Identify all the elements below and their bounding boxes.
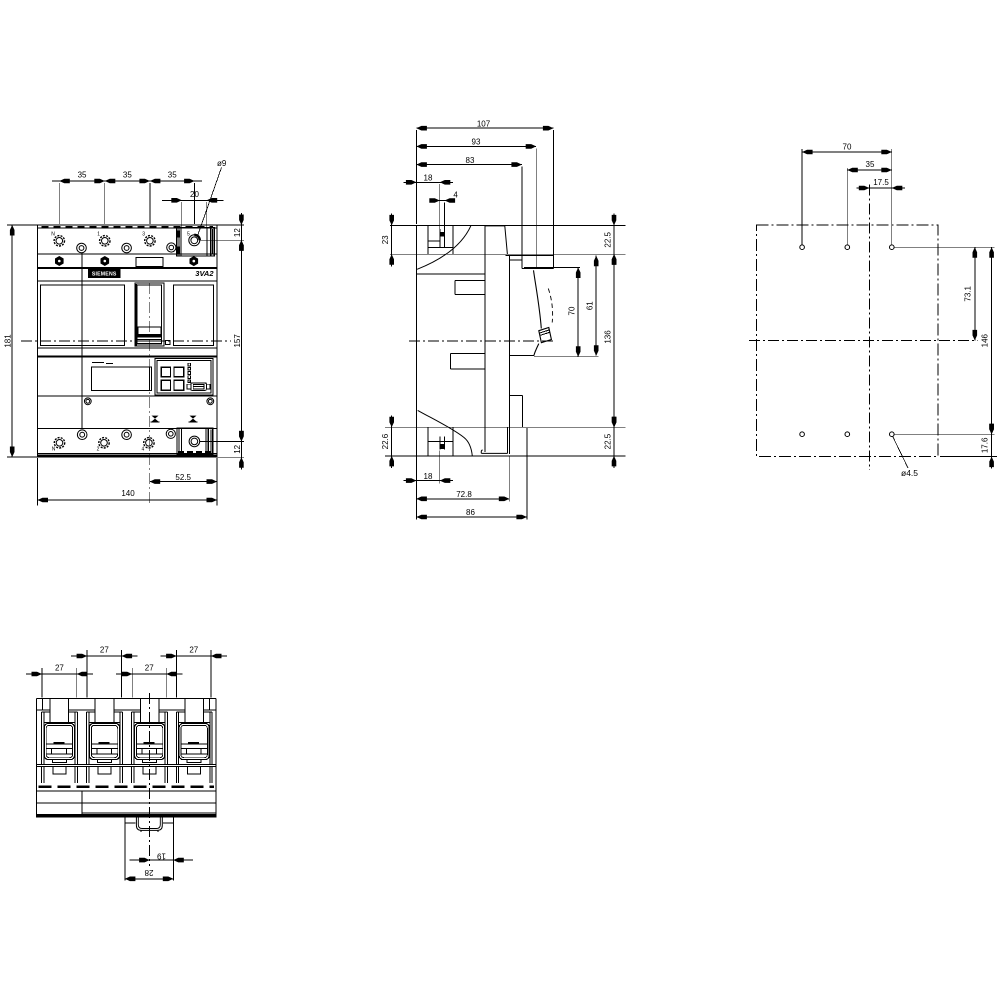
svg-text:61: 61 [585,301,594,310]
svg-text:1: 1 [97,232,100,238]
svg-text:19: 19 [157,852,166,861]
svg-text:22.5: 22.5 [603,232,612,248]
svg-text:27: 27 [100,645,109,654]
svg-text:140: 140 [121,489,135,498]
svg-text:4: 4 [142,447,145,453]
svg-text:18: 18 [424,472,433,481]
svg-text:83: 83 [466,156,475,165]
svg-text:3: 3 [142,232,145,238]
svg-text:3VA2: 3VA2 [195,269,214,278]
svg-text:4: 4 [453,190,458,199]
svg-text:73.1: 73.1 [964,285,973,301]
svg-text:72.8: 72.8 [456,490,472,499]
svg-text:20: 20 [190,190,199,199]
svg-text:52.5: 52.5 [175,473,191,482]
svg-text:157: 157 [233,334,242,348]
svg-text:93: 93 [472,138,481,147]
svg-text:18: 18 [424,174,433,183]
svg-text:22.5: 22.5 [603,433,612,449]
svg-text:N: N [51,232,55,238]
svg-text:146: 146 [981,333,990,347]
svg-text:35: 35 [168,171,177,180]
svg-text:136: 136 [603,330,612,344]
svg-text:86: 86 [466,508,475,517]
svg-text:28: 28 [144,868,153,877]
svg-text:2: 2 [97,447,100,453]
svg-text:27: 27 [145,663,154,672]
svg-text:17.6: 17.6 [981,437,990,453]
svg-text:27: 27 [55,663,64,672]
svg-text:70: 70 [567,306,576,315]
svg-text:17.5: 17.5 [873,178,889,187]
svg-text:35: 35 [866,160,875,169]
svg-text:SIEMENS: SIEMENS [92,272,117,278]
svg-text:N: N [52,447,56,453]
svg-text:181: 181 [4,334,13,348]
svg-text:22.6: 22.6 [381,433,390,449]
svg-text:35: 35 [123,171,132,180]
svg-text:12: 12 [233,444,242,453]
svg-text:23: 23 [381,235,390,244]
svg-text:ø4.5: ø4.5 [901,468,918,478]
svg-text:ø9: ø9 [217,159,227,168]
svg-text:35: 35 [78,171,87,180]
svg-text:27: 27 [189,645,198,654]
svg-text:5: 5 [187,232,190,238]
svg-text:107: 107 [477,119,491,128]
svg-text:12: 12 [233,228,242,237]
svg-text:70: 70 [843,142,852,151]
